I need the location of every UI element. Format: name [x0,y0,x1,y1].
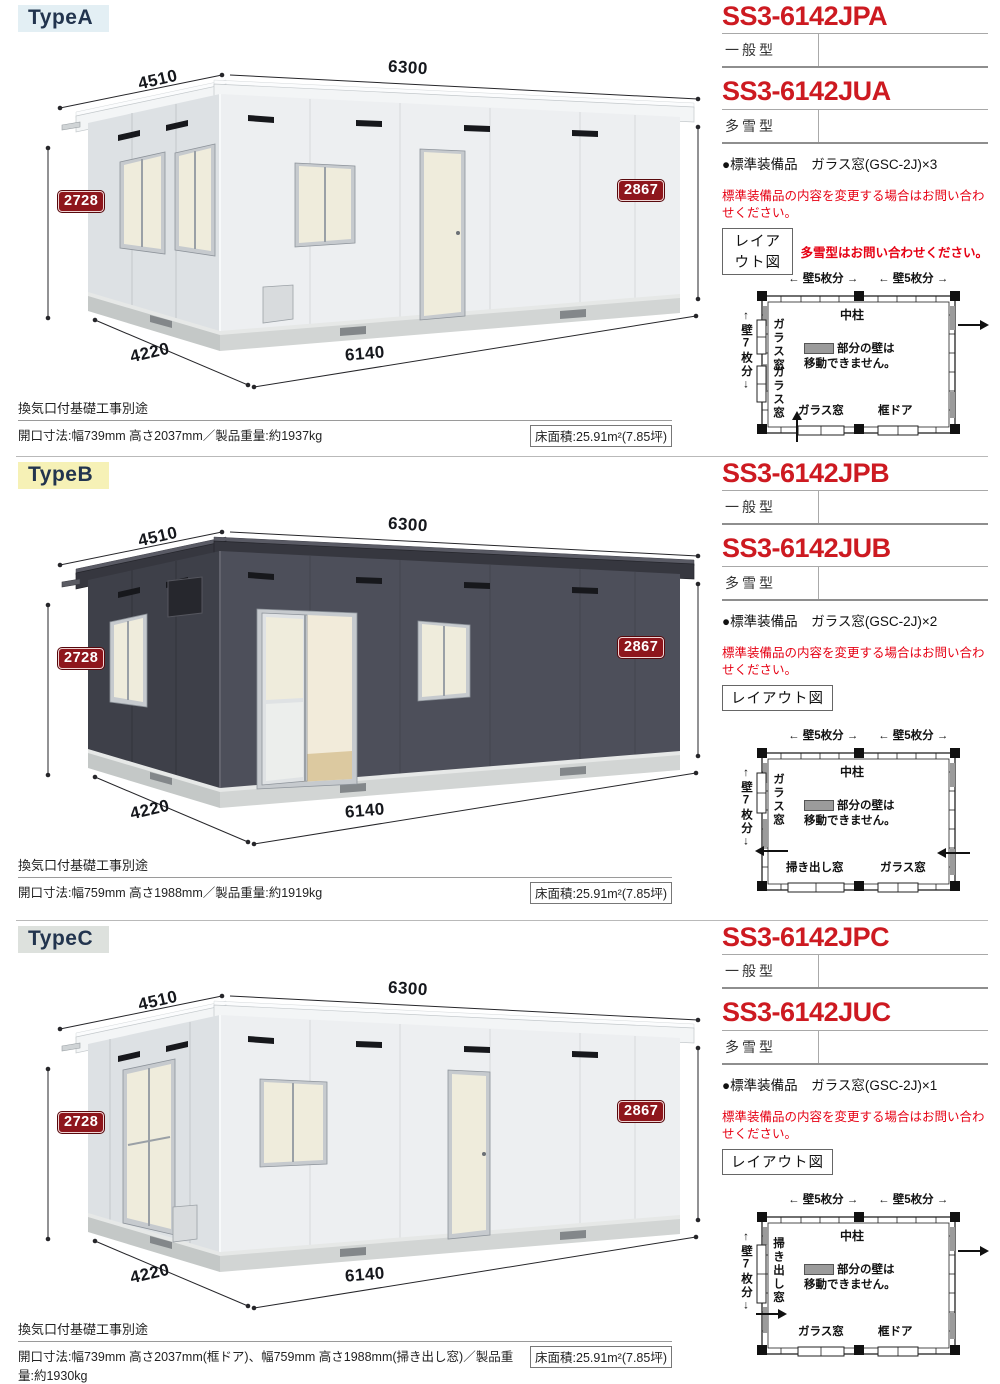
window-front [418,621,470,701]
non-movable-wall-swatch [804,343,834,354]
category-row: 多雪型 [722,1031,988,1065]
wall-span-label: ← 壁5枚分 → [788,1191,858,1207]
dim-height-left: 2728 [58,648,104,669]
wall-span-label-vertical: ↑壁7枚分↓ [738,1231,754,1314]
wall-span-label: ← 壁5枚分 → [788,727,858,743]
dim-base-right: 6140 [344,1263,385,1286]
divider [818,34,819,66]
wall-span-label: ← 壁5枚分 → [878,727,948,743]
sliding-window-label: 掃き出し窓 [770,1237,786,1305]
foundation-note: 換気口付基礎工事別途 [18,398,672,417]
center-post-label: 中柱 [840,1227,864,1244]
standard-equipment: ●標準装備品 ガラス窓(GSC-2J)×1 [722,1074,988,1094]
category-row: 一般型 [722,34,988,68]
window-left-1 [120,152,165,254]
divider [18,877,672,878]
fixed-wall-legend: 部分の壁は 移動できません。 [804,1263,922,1293]
category-label: 一般型 [722,40,776,60]
window-left-2 [175,144,215,256]
dim-height-right: 2867 [618,180,664,201]
standard-equipment: ●標準装備品 ガラス窓(GSC-2J)×2 [722,610,988,630]
bottom-window-label: ガラス窓 [798,1323,844,1339]
center-post-label: 中柱 [840,763,864,780]
electrical-box [168,577,202,617]
bottom-window-label: ガラス窓 [798,402,844,418]
wall-span-label-vertical: ↑壁7枚分↓ [738,310,754,393]
type-c-product-column: SS3-6142JPC 一般型 SS3-6142JUC 多雪型 ●標準装備品 ガ… [722,923,988,1175]
dim-height-left: 2728 [58,1112,104,1133]
sliding-window-left [123,1059,175,1235]
type-a-figure: 4510 6300 2728 2867 4220 6140 [0,28,712,400]
entry-door [420,149,465,320]
dim-base-right: 6140 [344,799,385,822]
floor-area-badge: 床面積:25.91m²(7.85坪) [530,425,672,447]
product-code-snow: SS3-6142JUC [722,998,988,1030]
product-code-snow: SS3-6142JUA [722,77,988,109]
glass-window-label: ガラス窓 [770,318,786,372]
section-type-a: TypeA [0,0,1000,457]
divider [818,110,819,142]
divider [818,491,819,523]
opening-arrows [792,320,989,442]
standard-equipment: ●標準装備品 ガラス窓(GSC-2J)×3 [722,153,988,173]
window-front [260,1079,327,1167]
dim-width-right: 6300 [387,514,428,537]
type-c-notes: 換気口付基礎工事別途 開口寸法:幅739mm 高さ2037mm(框ドア)、幅75… [18,1319,672,1384]
wall-span-label: ← 壁5枚分 → [878,1191,948,1207]
category-label: 多雪型 [722,573,776,593]
entry-door [448,1070,490,1239]
bottom-window-label: 掃き出し窓 [786,859,844,875]
layout-diagram-button[interactable]: レイアウト図 [722,685,833,711]
divider [18,420,672,421]
floor-plan-type-b: ← 壁5枚分 → ← 壁5枚分 → ↑壁7枚分↓ ガラス窓 中柱 部分の壁は 移… [730,723,992,913]
fixed-wall-legend: 部分の壁は 移動できません。 [804,342,922,372]
type-b-figure: 4510 6300 2728 2867 4220 6140 [0,485,712,857]
floor-area-badge: 床面積:25.91m²(7.85坪) [530,1346,672,1368]
type-b-notes: 換気口付基礎工事別途 開口寸法:幅759mm 高さ1988mm／製品重量:約19… [18,855,672,904]
divider [18,1341,672,1342]
type-a-notes: 換気口付基礎工事別途 開口寸法:幅739mm 高さ2037mm／製品重量:約19… [18,398,672,447]
category-row: 多雪型 [722,110,988,144]
bottom-window-label: ガラス窓 [880,859,926,875]
floor-plan-type-a: ← 壁5枚分 → ← 壁5枚分 → ↑壁7枚分↓ ガラス窓 ガラス窓 中柱 部分… [730,266,992,456]
floor-area-badge: 床面積:25.91m²(7.85坪) [530,882,672,904]
dim-base-right: 6140 [344,342,385,365]
bottom-door-label: 框ドア [878,1323,913,1339]
divider [818,955,819,987]
category-row: 一般型 [722,955,988,989]
opening-spec: 開口寸法:幅759mm 高さ1988mm／製品重量:約1919kg [18,882,328,901]
opening-spec: 開口寸法:幅739mm 高さ2037mm／製品重量:約1937kg [18,425,328,444]
section-type-c: TypeC [0,921,1000,1371]
category-row: 多雪型 [722,567,988,601]
non-movable-wall-swatch [804,800,834,811]
window-front [295,163,355,247]
dim-width-right: 6300 [387,978,428,1001]
utility-box [263,285,293,323]
category-label: 一般型 [722,961,776,981]
divider [818,567,819,599]
wall-span-label: ← 壁5枚分 → [878,270,948,286]
section-type-b: TypeB [0,457,1000,921]
type-b-product-column: SS3-6142JPB 一般型 SS3-6142JUB 多雪型 ●標準装備品 ガ… [722,459,988,711]
wall-span-label-vertical: ↑壁7枚分↓ [738,767,754,850]
dim-height-right: 2867 [618,1101,664,1122]
category-label: 多雪型 [722,1037,776,1057]
divider [818,1031,819,1063]
foundation-note: 換気口付基礎工事別途 [18,1319,672,1338]
type-a-product-column: SS3-6142JPA 一般型 SS3-6142JUA 多雪型 ●標準装備品 ガ… [722,2,988,275]
bottom-door-label: 框ドア [878,402,913,418]
dim-height-right: 2867 [618,637,664,658]
center-post-label: 中柱 [840,306,864,323]
fixed-wall-legend: 部分の壁は 移動できません。 [804,799,922,829]
floor-plan-type-c: ← 壁5枚分 → ← 壁5枚分 → ↑壁7枚分↓ 掃き出し窓 中柱 部分の壁は … [730,1187,992,1377]
change-warning: 標準装備品の内容を変更する場合はお問い合わせください。 [722,645,988,679]
utility-box [173,1205,197,1242]
type-c-figure: 4510 6300 2728 2867 4220 6140 [0,949,712,1321]
layout-diagram-button[interactable]: レイアウト図 [722,1149,833,1175]
category-label: 一般型 [722,497,776,517]
opening-arrows [755,846,970,858]
wall-span-label: ← 壁5枚分 → [788,270,858,286]
change-warning: 標準装備品の内容を変更する場合はお問い合わせください。 [722,188,988,222]
glass-window-label: ガラス窓 [770,773,786,827]
product-code-snow: SS3-6142JUB [722,534,988,566]
foundation-note: 換気口付基礎工事別途 [18,855,672,874]
product-code-general: SS3-6142JPC [722,923,988,955]
dim-width-right: 6300 [387,57,428,80]
window-left [110,614,147,707]
category-row: 一般型 [722,491,988,525]
category-label: 多雪型 [722,116,776,136]
change-warning: 標準装備品の内容を変更する場合はお問い合わせください。 [722,1109,988,1143]
glass-window-label: ガラス窓 [770,366,786,420]
non-movable-wall-swatch [804,1264,834,1275]
product-code-general: SS3-6142JPB [722,459,988,491]
dim-height-left: 2728 [58,191,104,212]
product-code-general: SS3-6142JPA [722,2,988,34]
snow-type-note: 多雪型はお問い合わせください。 [800,242,988,261]
sliding-door-open [257,609,357,789]
opening-spec: 開口寸法:幅739mm 高さ2037mm(框ドア)、幅759mm 高さ1988m… [18,1346,530,1384]
